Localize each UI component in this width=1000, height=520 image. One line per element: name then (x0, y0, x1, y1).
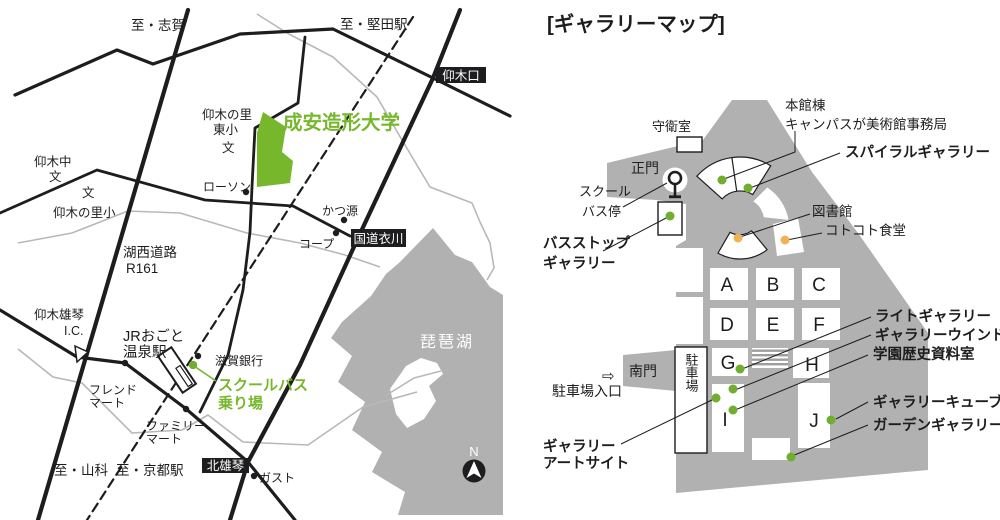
guard-room-label: 守衛室 (652, 119, 691, 134)
gallery-cube-dot (827, 416, 836, 425)
dest-katata: 至・堅田駅 (340, 17, 408, 32)
family-mart-dot (183, 406, 189, 412)
history-room-label: 学園歴史資料室 (873, 345, 975, 363)
school-bus-label-2: 乗り場 (218, 394, 263, 412)
lake-biwa-label: 琵琶湖 (420, 333, 474, 351)
dest-kyoto: 至・京都駅 (116, 463, 184, 478)
gallery-map: [ギャラリーマップ] (543, 12, 1000, 493)
building-west-2 (676, 297, 703, 344)
gallery-window-label: ギャラリーウインドウ (875, 327, 1000, 344)
landmark-lawson: ローソン (203, 180, 251, 194)
school-ogi-elem: 仰木の里小 (53, 205, 116, 220)
station-label-1: JRおごと (123, 328, 184, 345)
school-ogi-east-mark: 文 (222, 140, 235, 155)
parking-entrance-label: 駐車場入口 (552, 383, 622, 399)
sign-kitaogoto-label: 北雄琴 (207, 458, 245, 473)
gallery-map-title: [ギャラリーマップ] (547, 12, 725, 36)
art-site-dot (712, 394, 721, 403)
building-f-label: F (813, 315, 825, 336)
sign-kitaogoto: 北雄琴 (202, 458, 249, 473)
parking-label: 駐車場 (684, 353, 699, 392)
school-ogi-east-1: 仰木の里 (202, 107, 252, 122)
building-c-label: C (812, 275, 826, 296)
cafeteria-label: コトコト食堂 (825, 222, 906, 238)
bus-stop-gallery-label-1: バスストップ (543, 235, 630, 252)
gallery-window-dot (729, 385, 738, 394)
access-map: 仰木口 国道衣川 北雄琴 N 至・志賀 至・堅田駅 仰木の里 東小 文 成安造形… (0, 10, 510, 520)
landmark-family-mart-2: マート (146, 432, 182, 446)
building-j-label: J (809, 411, 819, 432)
school-ogi-east-2: 東小 (213, 123, 239, 137)
building-d-label: D (720, 315, 734, 336)
south-gate-label: 南門 (629, 363, 657, 379)
art-site-label-2: アートサイト (543, 455, 629, 472)
honkan-label-1: 本館棟 (785, 98, 826, 113)
shiga-bank-dot (195, 353, 201, 359)
guard-room-building (677, 137, 702, 152)
building-i-label: I (722, 410, 727, 431)
school-bus-stop-dot (189, 361, 197, 369)
main-gate-label: 正門 (631, 160, 659, 176)
dest-shiga: 至・志賀 (131, 18, 185, 33)
gallery-cube-label: ギャラリーキューブ (873, 393, 1000, 411)
station-label-2: 温泉駅 (123, 344, 167, 361)
building-e-label: E (767, 315, 780, 336)
gusto-dot (251, 473, 257, 479)
coop-dot (333, 230, 339, 236)
sign-kokudo-kinugawa-label: 国道衣川 (353, 231, 403, 246)
landmark-gusto: ガスト (259, 471, 295, 485)
spiral-gallery-label: スパイラルギャラリー (845, 144, 990, 161)
landmark-coop: コープ (299, 237, 334, 251)
school-ogi-jhs: 仰木中 (34, 154, 72, 169)
building-g-label: G (721, 353, 736, 374)
library-dot (734, 234, 743, 243)
history-room-dot (729, 406, 738, 415)
landmark-katsugen: かつ源 (322, 204, 358, 218)
school-ogi-elem-mark: 文 (82, 185, 95, 200)
building-garden-gallery (752, 438, 790, 460)
campus-access-map-page: 仰木口 国道衣川 北雄琴 N 至・志賀 至・堅田駅 仰木の里 東小 文 成安造形… (0, 0, 1000, 520)
light-gallery-dot (736, 365, 745, 374)
interchange-label-2: I.C. (64, 324, 83, 338)
school-ogi-jhs-mark: 文 (49, 169, 62, 184)
light-gallery-label: ライトギャラリー (875, 308, 991, 325)
bus-stop-gallery-label-2: ギャラリー (543, 255, 616, 272)
compass-n-label: N (469, 444, 478, 459)
building-a-label: A (721, 275, 734, 296)
sign-ogiguchi-label: 仰木口 (442, 68, 480, 83)
honkan-label-2: キャンパスが美術館事務局 (785, 117, 947, 132)
library-label: 図書館 (812, 204, 853, 219)
landmark-friend-mart-2: マート (89, 396, 125, 410)
building-h-label: H (805, 355, 819, 376)
art-site-label-1: ギャラリー (543, 438, 616, 455)
landmark-family-mart-1: ファミリー (146, 419, 206, 433)
landmark-friend-mart-1: フレンド (89, 383, 137, 397)
garden-gallery-dot (787, 453, 796, 462)
school-bus-label-1: スクールバス (218, 377, 308, 394)
honkan-dot (718, 176, 727, 185)
road-r161-label: R161 (126, 261, 158, 276)
road-kosei-label: 湖西道路 (123, 245, 177, 260)
interchange-label-1: 仰木雄琴 (34, 307, 85, 322)
school-bus-stop-label-2: バス停 (582, 204, 621, 219)
spiral-gallery-dot (744, 184, 753, 193)
dest-yamashina: 至・山科 (54, 463, 108, 478)
school-bus-leader-line (194, 366, 216, 381)
sign-ogiguchi: 仰木口 (436, 67, 486, 83)
map-canvas: 仰木口 国道衣川 北雄琴 N 至・志賀 至・堅田駅 仰木の里 東小 文 成安造形… (0, 0, 1000, 520)
cafeteria-dot (781, 236, 790, 245)
landmark-shiga-bank: 滋賀銀行 (215, 354, 263, 368)
building-west-1 (676, 248, 703, 292)
bus-stop-gallery-dot (666, 212, 675, 221)
school-bus-stop-label-1: スクール (579, 184, 631, 199)
sign-kokudo-kinugawa: 国道衣川 (351, 229, 406, 247)
garden-gallery-label: ガーデンギャラリー (873, 416, 1000, 434)
university-name-label: 成安造形大学 (283, 111, 400, 134)
building-b-label: B (767, 275, 780, 296)
